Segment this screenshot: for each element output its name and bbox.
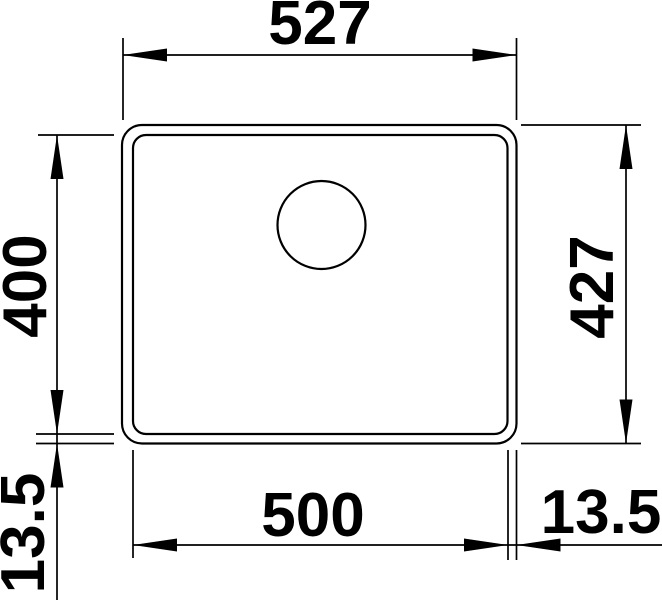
dimension-outer-height: 427 — [521, 125, 641, 444]
sink-outer-edge — [122, 125, 517, 444]
arrow-down-icon — [51, 390, 64, 434]
dim-label-outer-height: 427 — [558, 235, 627, 338]
drawing-svg: 527 400 13.5 427 — [0, 0, 662, 600]
dimension-flange-bottom-left: 13.5 — [0, 444, 64, 594]
arrow-up-icon — [620, 125, 633, 169]
dimension-outer-width: 527 — [123, 0, 517, 120]
arrow-down-icon — [620, 400, 633, 444]
sink-inner-bowl-edge — [133, 135, 508, 434]
drain-hole — [278, 181, 366, 269]
dim-label-outer-width: 527 — [268, 0, 371, 58]
arrow-left-icon — [133, 539, 177, 552]
dim-label-inner-width: 500 — [261, 481, 364, 550]
dim-label-flange-bottom-left: 13.5 — [0, 473, 58, 594]
dim-label-inner-height: 400 — [0, 234, 60, 337]
dim-label-flange-right: 13.5 — [541, 478, 662, 547]
arrow-right-icon — [473, 49, 517, 62]
arrow-right-icon — [464, 539, 508, 552]
arrow-up-icon — [51, 135, 64, 179]
dimension-flange-right: 13.5 — [517, 478, 662, 552]
arrow-left-icon — [123, 49, 167, 62]
sink-outline — [122, 125, 517, 444]
sink-technical-drawing: 527 400 13.5 427 — [0, 0, 662, 600]
